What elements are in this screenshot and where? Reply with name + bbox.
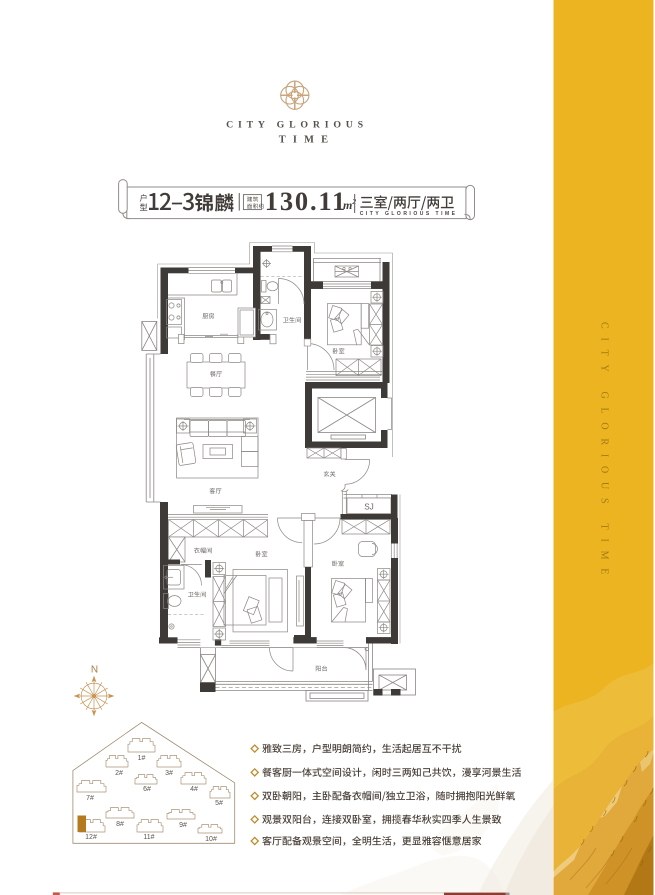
svg-text:TIME: TIME (279, 135, 336, 146)
svg-text:6#: 6# (143, 786, 151, 793)
svg-text:2#: 2# (115, 770, 123, 777)
svg-text:CITY GLORIOUS: CITY GLORIOUS (226, 120, 368, 131)
svg-text:12#: 12# (85, 834, 97, 841)
svg-text:3#: 3# (165, 770, 173, 777)
svg-text:5#: 5# (215, 800, 223, 807)
svg-text:10#: 10# (205, 836, 217, 843)
svg-text:CITY GLORIOUS TIME: CITY GLORIOUS TIME (360, 211, 458, 217)
svg-text:130.11: 130.11 (265, 186, 347, 216)
svg-text:CITY GLORIOUS TIME: CITY GLORIOUS TIME (599, 322, 610, 583)
svg-text:8#: 8# (116, 821, 124, 828)
svg-text:11#: 11# (143, 834, 154, 841)
svg-text:4#: 4# (190, 786, 198, 793)
svg-text:9#: 9# (179, 822, 187, 829)
svg-text:N: N (91, 665, 98, 676)
svg-text:7#: 7# (86, 795, 94, 802)
svg-text:1#: 1# (138, 755, 146, 762)
svg-text:SJ: SJ (364, 503, 374, 512)
